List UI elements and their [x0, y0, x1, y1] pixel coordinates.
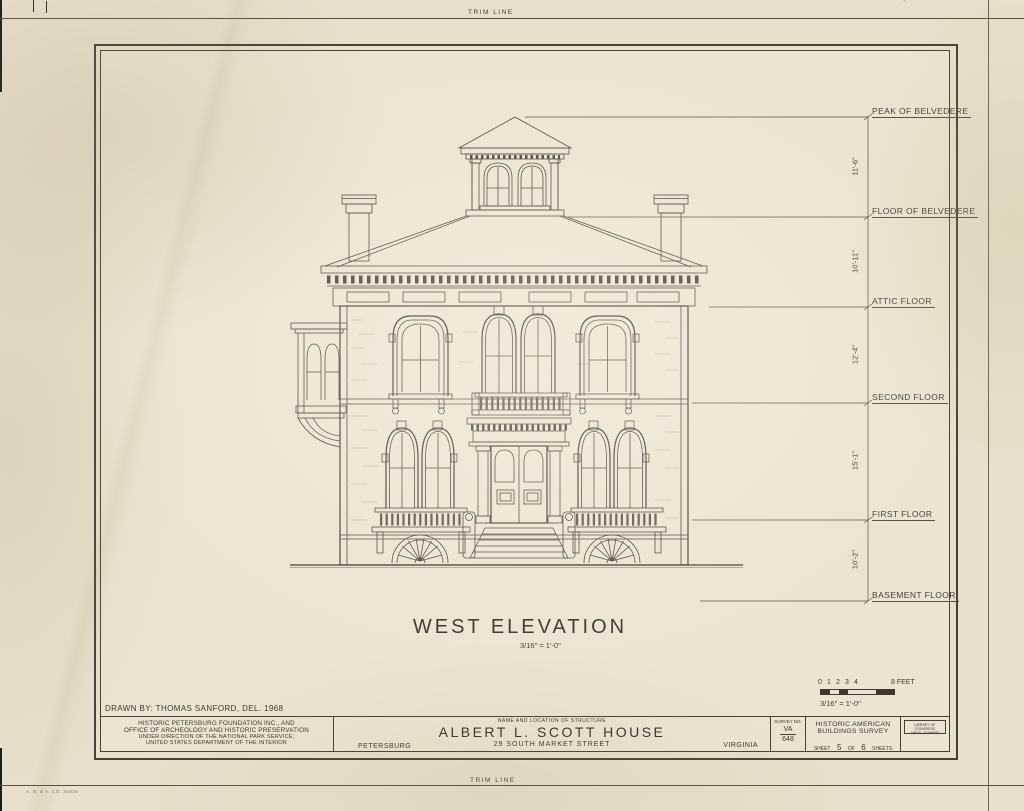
chimney-right	[654, 195, 688, 261]
trim-line-bottom-label: TRIM LINE	[470, 777, 516, 784]
drawn-by: DRAWN BY: THOMAS SANFORD, DEL. 1968	[105, 704, 283, 713]
drawing-scale-note: 3/16" = 1'-0"	[520, 641, 561, 650]
registration-mark	[46, 1, 47, 13]
sponsor-line: OFFICE OF ARCHEOLOGY AND HISTORIC PRESER…	[100, 727, 333, 734]
sheet-total: 6	[861, 743, 865, 752]
level-label-attic-floor: ATTIC FLOOR	[872, 296, 935, 308]
level-label-floor-of-belvedere: FLOOR OF BELVEDERE	[872, 206, 978, 218]
paper-wrinkle	[859, 0, 913, 29]
survey-state: VA	[771, 726, 805, 733]
sheet-number: 5	[837, 743, 841, 752]
dimension-belvedere-to-attic: 10'-11"	[851, 242, 860, 282]
scale-tick-1: 1	[827, 679, 831, 686]
title-block-loc-cell: LIBRARY OF CONGRESS NEGS. NUMBER	[900, 717, 949, 752]
trim-line-top-label: TRIM LINE	[468, 9, 514, 16]
loc-line2: NEGS. NUMBER	[905, 731, 945, 735]
sheet-line: SHEET 5 OF 6 SHEETS	[806, 737, 900, 755]
first-floor-windows-left	[382, 421, 457, 508]
drawing-title: WEST ELEVATION	[400, 616, 640, 639]
city-label: PETERSBURG	[358, 743, 411, 750]
title-block-sponsor-cell: HISTORIC PETERSBURG FOUNDATION INC., AND…	[100, 717, 333, 752]
scale-tick-0: 0	[818, 679, 822, 686]
title-block: HISTORIC PETERSBURG FOUNDATION INC., AND…	[100, 716, 949, 752]
scale-bar: 0 1 2 3 4 8 FEET 3/16" = 1'-0"	[820, 679, 950, 711]
trim-line-top	[0, 18, 1024, 19]
second-floor-window-right	[576, 316, 639, 414]
level-label-peak-of-belvedere: PEAK OF BELVEDERE	[872, 106, 971, 118]
trim-line-bottom	[0, 785, 1024, 786]
dimension-second-to-first: 15'-1"	[851, 441, 860, 481]
belvedere	[459, 117, 571, 216]
habs-line2: BUILDINGS SURVEY	[806, 728, 900, 735]
sheet-paper: TRIM LINE TRIM LINE	[0, 0, 1024, 811]
first-floor-windows-right	[574, 421, 649, 508]
title-block-survey-cell: SURVEY NO. VA 648	[770, 717, 805, 752]
sheets-word: SHEETS	[872, 746, 892, 752]
second-floor-center-windows	[482, 306, 555, 393]
title-block-habs-cell: HISTORIC AMERICAN BUILDINGS SURVEY SHEET…	[805, 717, 900, 752]
main-wall	[340, 306, 688, 565]
level-label-second-floor: SECOND FLOOR	[872, 392, 948, 404]
survey-number: 648	[771, 736, 805, 743]
scale-tick-4: 4	[854, 679, 858, 686]
balcony-right	[568, 508, 666, 553]
scale-tick-3: 3	[845, 679, 849, 686]
registration-mark	[33, 0, 34, 12]
level-label-first-floor: FIRST FLOOR	[872, 509, 935, 521]
sheet-word: SHEET	[814, 746, 831, 752]
trim-line-right	[988, 0, 989, 811]
scale-bar-ratio: 3/16" = 1'-0"	[820, 699, 861, 708]
loc-line1: LIBRARY OF CONGRESS	[905, 723, 945, 731]
loc-box: LIBRARY OF CONGRESS NEGS. NUMBER	[904, 720, 946, 734]
survey-fraction-line	[780, 734, 796, 735]
scale-tick-2: 2	[836, 679, 840, 686]
bay-window	[291, 323, 347, 447]
scale-bar-ruler	[820, 689, 895, 695]
scale-feet-label: 8 FEET	[891, 679, 915, 686]
main-roof	[325, 216, 703, 267]
habs-line1: HISTORIC AMERICAN	[806, 721, 900, 728]
of-word: OF	[848, 746, 855, 752]
sponsor-line: UNITED STATES DEPARTMENT OF THE INTERIOR	[100, 740, 333, 746]
survey-no-label: SURVEY NO.	[771, 719, 805, 724]
dimension-leaders	[525, 114, 872, 604]
sponsor-line: HISTORIC PETERSBURG FOUNDATION INC., AND	[100, 720, 333, 727]
dimension-attic-to-second: 12'-4"	[851, 335, 860, 375]
title-block-name-cell: NAME AND LOCATION OF STRUCTURE ALBERT L.…	[333, 717, 770, 752]
entrance-door	[476, 446, 562, 523]
dimension-first-to-basement: 10'-2"	[851, 540, 860, 580]
scan-edge-top-left	[0, 0, 2, 92]
printer-mark: A. B. & A. CO. 25936	[26, 789, 78, 794]
balcony-left	[372, 508, 470, 553]
structure-name: ALBERT L. SCOTT HOUSE	[334, 724, 770, 740]
state-label: VIRGINIA	[723, 742, 758, 749]
second-floor-window-left	[389, 316, 452, 414]
chimney-left	[342, 195, 376, 261]
entrance-entablature	[467, 418, 571, 446]
cornice	[321, 266, 707, 306]
level-label-basement-floor: BASEMENT FLOOR	[872, 590, 959, 602]
scan-edge-bottom-left	[0, 748, 2, 811]
dimension-peak-to-belvedere: 11'-6"	[851, 147, 860, 187]
